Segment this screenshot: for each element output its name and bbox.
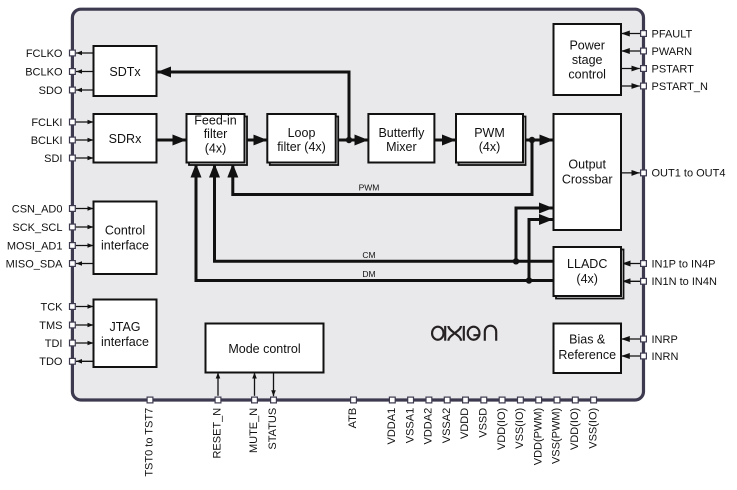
svg-text:(4x): (4x) [479, 140, 501, 154]
svg-text:MOSI_AD1: MOSI_AD1 [7, 240, 63, 252]
svg-text:VSSA1: VSSA1 [404, 408, 416, 443]
svg-text:IN1N to IN4N: IN1N to IN4N [652, 276, 717, 288]
svg-text:RESET_N: RESET_N [212, 408, 224, 459]
svg-text:BCLKI: BCLKI [31, 135, 63, 147]
svg-text:CM: CM [362, 250, 375, 260]
svg-text:PFAULT: PFAULT [652, 28, 693, 40]
svg-text:TCK: TCK [41, 301, 64, 313]
svg-text:VSS(IO): VSS(IO) [514, 408, 526, 449]
svg-text:interface: interface [101, 239, 149, 253]
svg-text:BCLKO: BCLKO [25, 66, 63, 78]
svg-text:interface: interface [101, 335, 149, 349]
svg-text:SDRx: SDRx [109, 132, 142, 146]
svg-text:TST0 to TST7: TST0 to TST7 [144, 408, 156, 477]
svg-text:Mode control: Mode control [228, 342, 300, 356]
svg-text:VSS(PWM): VSS(PWM) [551, 408, 563, 464]
svg-text:STATUS: STATUS [267, 408, 279, 450]
svg-text:Butterfly: Butterfly [378, 126, 425, 140]
svg-text:Power: Power [569, 39, 604, 53]
svg-text:CSN_AD0: CSN_AD0 [12, 203, 63, 215]
svg-text:Output: Output [568, 157, 606, 171]
svg-text:VSS(IO): VSS(IO) [587, 408, 599, 449]
svg-text:PSTART_N: PSTART_N [652, 81, 708, 93]
svg-text:VDD(IO): VDD(IO) [496, 408, 508, 450]
svg-text:SDTx: SDTx [109, 65, 141, 79]
svg-text:SDO: SDO [39, 85, 63, 97]
svg-text:PSTART: PSTART [652, 63, 695, 75]
svg-text:INRN: INRN [652, 351, 679, 363]
svg-text:IN1P to IN4P: IN1P to IN4P [652, 258, 716, 270]
svg-text:VSSD: VSSD [478, 408, 490, 438]
svg-text:PWM: PWM [474, 126, 505, 140]
svg-text:JTAG: JTAG [109, 320, 140, 334]
svg-text:(4x): (4x) [205, 141, 227, 155]
svg-text:TDI: TDI [45, 338, 63, 350]
svg-text:control: control [568, 68, 606, 82]
svg-text:MISO_SDA: MISO_SDA [6, 258, 64, 270]
svg-text:TMS: TMS [39, 320, 62, 332]
svg-text:SDI: SDI [44, 153, 62, 165]
svg-text:Bias &: Bias & [569, 333, 606, 347]
svg-text:Mixer: Mixer [386, 140, 417, 154]
svg-text:MUTE_N: MUTE_N [248, 408, 260, 453]
svg-text:Crossbar: Crossbar [562, 172, 613, 186]
svg-text:TDO: TDO [39, 356, 63, 368]
svg-text:filter (4x): filter (4x) [277, 140, 326, 154]
svg-text:(4x): (4x) [576, 272, 598, 286]
svg-text:VDDA2: VDDA2 [423, 408, 435, 445]
svg-text:filter: filter [204, 127, 228, 141]
svg-text:stage: stage [572, 53, 603, 67]
svg-text:INRP: INRP [652, 334, 678, 346]
svg-text:VDD(IO): VDD(IO) [569, 408, 581, 450]
svg-text:Feed-in: Feed-in [194, 113, 236, 127]
svg-text:LLADC: LLADC [567, 257, 607, 271]
svg-text:ATB: ATB [347, 408, 359, 429]
svg-text:PWARN: PWARN [652, 46, 693, 58]
svg-text:PWM: PWM [359, 183, 380, 193]
svg-text:Control: Control [105, 223, 145, 237]
svg-text:VSSA2: VSSA2 [441, 408, 453, 443]
svg-text:DM: DM [362, 269, 375, 279]
svg-text:Reference: Reference [558, 348, 616, 362]
svg-text:SCK_SCL: SCK_SCL [12, 222, 62, 234]
svg-text:FCLKO: FCLKO [26, 48, 63, 60]
svg-text:Loop: Loop [288, 126, 316, 140]
svg-text:VDDA1: VDDA1 [386, 408, 398, 445]
svg-text:OUT1 to OUT4: OUT1 to OUT4 [652, 168, 726, 180]
svg-text:VDDD: VDDD [459, 408, 471, 439]
svg-text:VDD(PWM): VDD(PWM) [532, 408, 544, 465]
svg-text:FCLKI: FCLKI [31, 117, 62, 129]
